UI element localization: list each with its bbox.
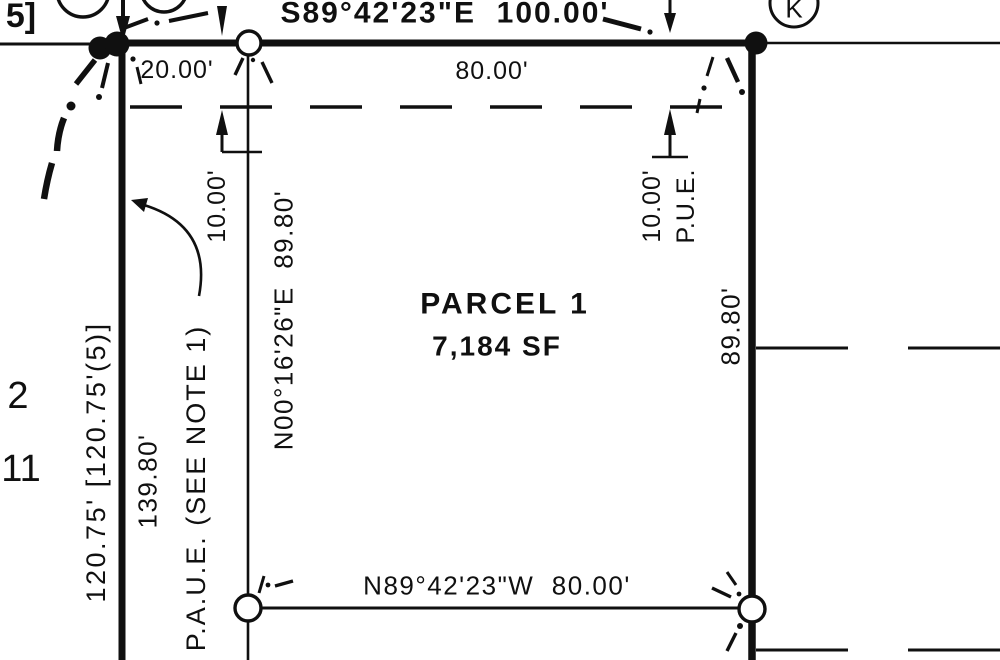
north-line-east-segment-dim: 80.00' [455, 58, 528, 84]
paue-leader-arrow [131, 198, 201, 296]
easement-left-width-dim: 10.00' [204, 169, 230, 242]
down-arrow-right-head [664, 13, 676, 33]
witness-dash [102, 63, 108, 88]
pue-arrow-right [652, 109, 688, 157]
arc-dash-3 [44, 163, 52, 199]
witness-dash [727, 633, 736, 651]
witness-dot [737, 592, 742, 597]
north-line-west-offset-dim: 20.00' [140, 57, 213, 83]
plat-map-sheet: S89°42'23"E 100.00' 20.00' 80.00' 10.00'… [0, 0, 1000, 660]
set-corner-top [235, 31, 272, 83]
monument-dot [105, 32, 130, 57]
witness-dash [712, 588, 731, 597]
witness-dash [727, 58, 738, 82]
witness-dash [727, 572, 736, 585]
easement-right-width-dim: 10.00' [639, 169, 665, 242]
pue-arrow-left [216, 110, 262, 152]
curve-dashdot-arc [44, 60, 95, 199]
set-corner-bottom-left [235, 576, 293, 621]
up-arrow-head [216, 110, 228, 135]
edge-symbol-circle [141, 0, 187, 12]
found-monument-right [603, 19, 768, 113]
north-line-bearing: S89°42'23"E 100.00' [280, 0, 609, 29]
corner-open-circle [235, 595, 261, 621]
set-corner-bottom-right [712, 572, 765, 651]
witness-dot [130, 56, 135, 61]
corner-open-circle [237, 31, 261, 55]
west-line-outer-dim: 120.75' [120.75'(5)] [82, 322, 110, 603]
south-line-bearing: N89°42'23"W 80.00' [363, 572, 631, 599]
leader-curve [144, 205, 201, 296]
parcel-name: PARCEL 1 [420, 288, 590, 320]
down-arrow-mid-head [217, 6, 227, 36]
witness-dot [154, 20, 159, 25]
witness-dot [266, 583, 271, 588]
arc-dot [67, 102, 76, 111]
witness-dot [701, 85, 706, 90]
corner-open-circle [739, 596, 765, 622]
adjacent-lot-lines-east [756, 348, 1000, 650]
witness-dot [739, 89, 745, 95]
east-line-dim: 89.80' [717, 286, 744, 365]
parcel-area: 7,184 SF [432, 331, 562, 360]
witness-dot [647, 29, 652, 34]
paue-note-label: P.A.U.E. (SEE NOTE 1) [182, 325, 210, 652]
monument-dot [745, 32, 768, 55]
up-arrow-head [664, 109, 676, 135]
adjacent-lot-number-lower: 11 [1, 450, 40, 490]
witness-dash [169, 13, 208, 21]
witness-dash [697, 99, 700, 113]
witness-dot [737, 623, 743, 629]
witness-dash [707, 57, 713, 76]
witness-dash [275, 581, 293, 586]
arc-dash-2 [57, 118, 64, 151]
leader-arrow-head [131, 198, 148, 212]
easement-right-label: P.U.E. [673, 168, 699, 243]
witness-dot [96, 94, 102, 100]
witness-dot [251, 58, 255, 62]
witness-dash [235, 58, 243, 75]
witness-dash [262, 62, 272, 83]
edge-symbol-circle [57, 0, 109, 17]
witness-dash [259, 576, 264, 593]
west-line-bearing: N00°16'26"E 89.80' [270, 190, 297, 450]
margin-bracket-fragment: 5] [6, 0, 36, 35]
monument-k-letter: K [785, 0, 802, 23]
arc-dash-1 [76, 60, 95, 84]
adjacent-lot-number-upper: 2 [7, 377, 28, 417]
west-line-inner-dim: 139.80' [134, 434, 161, 529]
